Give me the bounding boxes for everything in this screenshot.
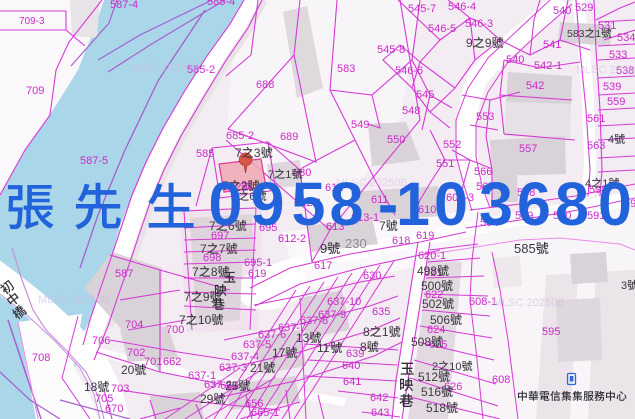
svg-text:551: 551 [436,158,454,170]
svg-text:552: 552 [443,139,461,151]
svg-text:0958-103680: 0958-103680 [209,170,632,238]
svg-text:1: 1 [285,169,291,181]
svg-text:7: 7 [179,313,186,327]
svg-text:545: 545 [416,89,434,101]
svg-text:587-4: 587-4 [110,0,138,11]
svg-text:502: 502 [422,297,442,311]
svg-text:553: 553 [476,111,494,123]
svg-text:637-5: 637-5 [243,339,271,351]
svg-text:546-4: 546-4 [448,1,476,13]
svg-text:583: 583 [567,28,585,40]
svg-text:1: 1 [595,28,601,40]
svg-text:706: 706 [92,335,110,347]
svg-text:688: 688 [256,79,274,91]
svg-text:10: 10 [198,313,212,327]
svg-text:635: 635 [372,306,390,318]
svg-text:29: 29 [200,392,214,406]
svg-text:557: 557 [519,143,537,155]
svg-text:MLSC 20250B: MLSC 20250B [576,64,635,76]
svg-text:11: 11 [317,341,330,355]
svg-text:18: 18 [84,380,98,394]
svg-text:703: 703 [111,383,129,395]
svg-text:545-8: 545-8 [377,44,405,56]
svg-text:7: 7 [200,242,207,256]
svg-text:8: 8 [360,340,367,354]
svg-text:25: 25 [225,379,239,393]
svg-text:540: 540 [506,54,524,66]
svg-text:230: 230 [345,236,367,251]
svg-text:1: 1 [382,325,389,339]
svg-text:561: 561 [587,113,605,125]
svg-text:585: 585 [196,148,214,160]
svg-text:8: 8 [363,325,370,339]
svg-text:595: 595 [542,326,560,338]
svg-text:9: 9 [466,36,473,50]
svg-text:540: 540 [553,5,571,17]
svg-text:542-1: 542-1 [534,60,562,72]
svg-text:4: 4 [608,134,614,146]
svg-text:620-1: 620-1 [418,250,446,262]
svg-text:708: 708 [32,352,50,364]
svg-text:MLSC 20250B: MLSC 20250B [38,294,110,306]
svg-text:689: 689 [280,131,298,143]
svg-text:617: 617 [314,260,332,272]
svg-text:7: 7 [219,242,226,256]
svg-text:641: 641 [343,376,361,388]
svg-text:MLSC 20250B: MLSC 20250B [128,62,200,74]
svg-text:665-1: 665-1 [251,407,279,419]
svg-text:9: 9 [485,36,492,50]
svg-text:701: 701 [144,356,162,368]
svg-text:533: 533 [609,49,627,61]
svg-text:17: 17 [272,346,286,360]
svg-text:500: 500 [421,279,441,293]
svg-text:3: 3 [254,146,261,160]
svg-text:559: 559 [607,96,625,108]
svg-text:642: 642 [370,392,388,404]
svg-text:7: 7 [235,146,242,160]
svg-text:512: 512 [418,370,438,384]
svg-text:548: 548 [402,105,420,117]
svg-text:506: 506 [430,313,450,327]
svg-text:13: 13 [296,331,310,345]
svg-text:585-4: 585-4 [207,0,235,8]
svg-text:508: 508 [411,335,431,349]
svg-text:545-7: 545-7 [408,3,436,15]
svg-text:549: 549 [351,119,369,131]
svg-text:516: 516 [421,385,441,399]
svg-text:709: 709 [26,85,44,97]
svg-text:9: 9 [320,241,327,256]
svg-text:619: 619 [248,268,266,280]
svg-text:587-5: 587-5 [80,155,108,167]
svg-text:21: 21 [250,361,264,375]
svg-text:608: 608 [492,374,510,386]
svg-text:7: 7 [184,290,191,304]
svg-text:546-5: 546-5 [428,23,456,35]
svg-text:3: 3 [621,280,627,292]
svg-text:8: 8 [211,265,218,279]
svg-text:702: 702 [127,347,145,359]
svg-text:704: 704 [125,319,143,331]
svg-text:630: 630 [363,270,381,282]
svg-text:20: 20 [121,363,135,377]
svg-text:9: 9 [203,290,210,304]
svg-text:546-6: 546-6 [395,65,423,77]
svg-text:643: 643 [371,407,389,419]
svg-text:709-3: 709-3 [19,16,45,27]
svg-text:7: 7 [192,265,199,279]
svg-text:587: 587 [115,268,133,280]
svg-text:685-2: 685-2 [226,130,254,142]
svg-text:585: 585 [514,241,536,256]
svg-text:662: 662 [163,356,181,368]
svg-text:546-3: 546-3 [465,18,493,30]
svg-text:MLSC 20250B: MLSC 20250B [493,297,565,309]
svg-text:563: 563 [587,140,605,152]
svg-text:583: 583 [337,63,355,75]
svg-text:529: 529 [575,2,593,14]
svg-text:534: 534 [617,32,635,44]
svg-text:637-3: 637-3 [219,362,247,374]
svg-text:10: 10 [449,361,461,373]
svg-text:541: 541 [543,39,561,51]
svg-text:670: 670 [105,403,123,415]
svg-text:550: 550 [387,134,405,146]
svg-text:637-10: 637-10 [327,296,361,308]
svg-text:542: 542 [526,80,544,92]
svg-text:640: 640 [342,360,360,372]
svg-text:498: 498 [417,264,437,278]
svg-text:539: 539 [603,81,621,93]
svg-text:518: 518 [426,401,446,415]
